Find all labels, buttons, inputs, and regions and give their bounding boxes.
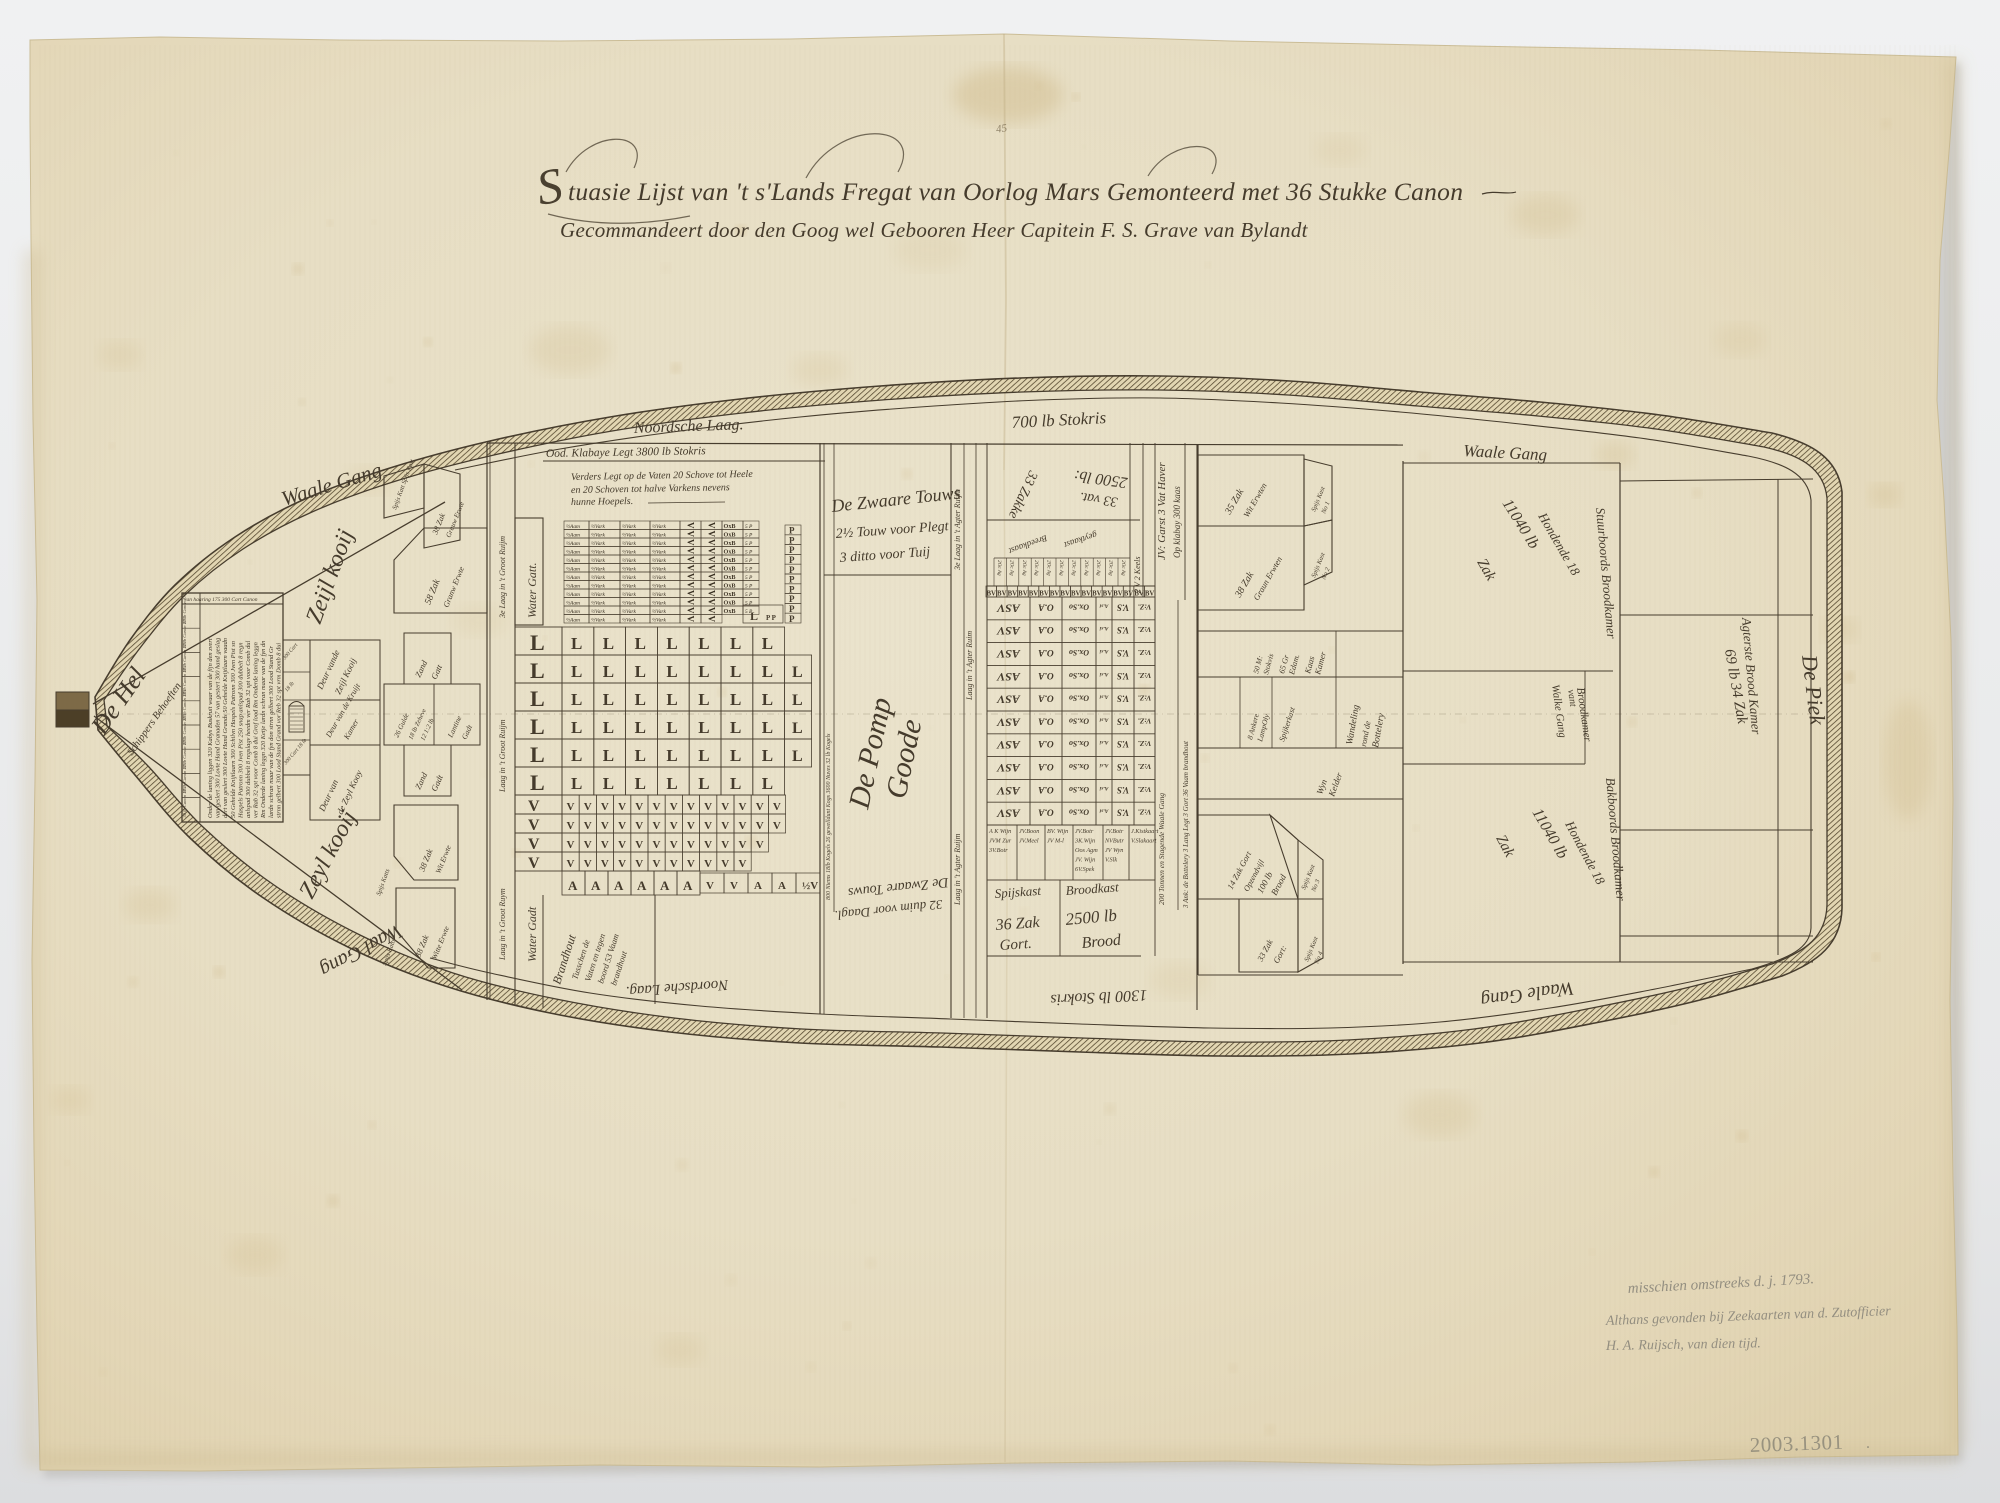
svg-text:V: V: [653, 801, 661, 813]
svg-text:2003.1301: 2003.1301: [1749, 1430, 1844, 1457]
svg-text:BV: BV: [997, 591, 1007, 598]
svg-text:5 P: 5 P: [745, 567, 753, 573]
svg-text:P: P: [789, 535, 795, 545]
svg-text:A: A: [568, 878, 578, 893]
svg-text:A.si: A.si: [1099, 694, 1109, 700]
svg-text:5 P: 5 P: [745, 558, 753, 564]
svg-text:2Oc Ag: 2Oc Ag: [1058, 560, 1064, 576]
svg-text:V: V: [686, 539, 696, 546]
svg-text:½Vark: ½Vark: [652, 600, 667, 607]
svg-text:V: V: [756, 801, 764, 813]
svg-text:V: V: [686, 573, 696, 580]
svg-text:Brood: Brood: [1081, 932, 1123, 952]
svg-text:6V.Spek: 6V.Spek: [1075, 866, 1095, 873]
svg-text:V: V: [707, 565, 717, 572]
svg-text:½Vark: ½Vark: [652, 557, 667, 564]
svg-text:Op klabay 300 kaas: Op klabay 300 kaas: [1172, 486, 1182, 558]
svg-text:Ox.So: Ox.So: [1069, 602, 1089, 611]
svg-text:Ox.So: Ox.So: [1069, 671, 1089, 680]
svg-text:V.S: V.S: [1117, 648, 1129, 658]
svg-text:L: L: [635, 690, 646, 709]
svg-text:van geslert 300 Lovte Hand Gra: van geslert 300 Lovte Hand Granaden 57 v…: [215, 637, 222, 818]
svg-text:½Vark: ½Vark: [591, 523, 606, 530]
svg-text:P: P: [789, 604, 795, 614]
svg-text:BV: BV: [987, 591, 997, 598]
svg-text:BV: BV: [1092, 591, 1102, 598]
svg-text:5 P: 5 P: [745, 524, 753, 530]
svg-text:L: L: [666, 774, 677, 793]
svg-text:BV: BV: [1113, 591, 1123, 598]
svg-text:V: V: [704, 820, 712, 832]
svg-text:2 V 2 Keels: 2 V 2 Keels: [1133, 556, 1142, 593]
svg-text:5 P: 5 P: [745, 541, 753, 547]
svg-text:3K.Wijn: 3K.Wijn: [1074, 838, 1095, 845]
svg-text:L: L: [571, 746, 582, 765]
svg-text:OxB: OxB: [724, 532, 736, 539]
svg-text:V: V: [739, 858, 747, 870]
svg-text:OxB: OxB: [724, 540, 736, 547]
svg-text:BV: BV: [1039, 591, 1049, 598]
svg-text:V: V: [730, 880, 738, 892]
svg-text:anlspad 300 dubbelt 8 regslagv: anlspad 300 dubbelt 8 regslagv heedm ver…: [245, 641, 252, 818]
svg-text:L: L: [666, 746, 677, 765]
svg-text:V.S: V.S: [1117, 694, 1129, 704]
svg-text:45: 45: [995, 122, 1008, 135]
svg-text:½Vark: ½Vark: [622, 549, 637, 556]
svg-text:L: L: [635, 634, 646, 653]
svg-text:L: L: [792, 748, 803, 765]
svg-text:L: L: [792, 664, 803, 681]
svg-text:BV: BV: [1124, 591, 1134, 598]
svg-text:Ox.So: Ox.So: [1069, 625, 1089, 634]
svg-text:V:Z.: V:Z.: [1138, 716, 1152, 725]
svg-text:V:Z.: V:Z.: [1138, 762, 1152, 771]
svg-text:A: A: [683, 878, 693, 893]
svg-text:V: V: [686, 607, 696, 614]
svg-text:V: V: [721, 839, 729, 851]
svg-text:L: L: [730, 718, 741, 737]
svg-text:V: V: [707, 590, 717, 597]
svg-text:O.A: O.A: [1038, 807, 1054, 817]
svg-text:V: V: [707, 616, 717, 623]
svg-text:V: V: [721, 801, 729, 813]
svg-text:ASV: ASV: [996, 601, 1021, 615]
svg-text:L: L: [698, 690, 709, 709]
svg-text:2Oc Ag: 2Oc Ag: [1008, 560, 1014, 576]
svg-text:V: V: [584, 820, 592, 832]
svg-text:O.A: O.A: [1038, 624, 1054, 634]
svg-text:½Vark: ½Vark: [622, 608, 637, 615]
svg-text:½V: ½V: [802, 880, 818, 892]
svg-text:L: L: [762, 690, 773, 709]
svg-text:½Aam: ½Aam: [566, 617, 580, 624]
svg-text:V: V: [670, 839, 678, 851]
svg-text:Laag in 't Agter Ruim: Laag in 't Agter Ruim: [965, 631, 974, 701]
svg-text:BV. Wijn: BV. Wijn: [1047, 828, 1068, 835]
svg-text:ver Rab 32 spt voor Comb 8 dui: ver Rab 32 spt voor Comb 8 dui Grof lood…: [253, 642, 260, 818]
svg-text:V: V: [601, 839, 609, 851]
svg-text:200 Tonnen en Stagende Waale G: 200 Tonnen en Stagende Waale Gang: [1157, 793, 1166, 905]
svg-text:V: V: [739, 839, 747, 851]
svg-text:JV.Botr: JV.Botr: [1075, 828, 1094, 835]
svg-text:V: V: [686, 565, 696, 572]
svg-text:strnn gelbert 300 Lood Stand G: strnn gelbert 300 Lood Stand Grand vor R…: [275, 643, 282, 818]
svg-text:V: V: [653, 858, 661, 870]
svg-text:50 Gehelde Knijtlaarn 300 Schi: 50 Gehelde Knijtlaarn 300 Schilvn Haspel…: [230, 641, 237, 818]
svg-text:Laag in 't Groot Ruym: Laag in 't Groot Ruym: [498, 888, 507, 961]
svg-text:V: V: [528, 817, 540, 834]
svg-text:2Oc Ag: 2Oc Ag: [1083, 560, 1089, 576]
svg-text:Ox.So: Ox.So: [1069, 785, 1089, 794]
svg-text:½Vark: ½Vark: [622, 557, 637, 564]
svg-text:V.Slk: V.Slk: [1105, 857, 1117, 864]
svg-text:2Oc Ag: 2Oc Ag: [996, 560, 1002, 576]
svg-text:L: L: [730, 746, 741, 765]
svg-text:O.A: O.A: [1038, 761, 1054, 771]
svg-text:L: L: [603, 718, 614, 737]
svg-text:L: L: [762, 746, 773, 765]
svg-text:L: L: [698, 634, 709, 653]
svg-text:A.si: A.si: [1099, 762, 1109, 768]
svg-text:V: V: [653, 839, 661, 851]
svg-text:Laag in 't Agter Ruijm: Laag in 't Agter Ruijm: [953, 833, 962, 906]
svg-text:L: L: [635, 662, 646, 681]
svg-text:A: A: [614, 878, 624, 893]
svg-text:V: V: [528, 836, 540, 853]
svg-text:A: A: [778, 880, 786, 892]
svg-text:½Vark: ½Vark: [591, 549, 606, 556]
svg-text:½Aam: ½Aam: [566, 574, 580, 581]
svg-text:L: L: [730, 690, 741, 709]
svg-text:V:Z.: V:Z.: [1138, 671, 1152, 680]
svg-text:L: L: [635, 746, 646, 765]
svg-text:V: V: [686, 590, 696, 597]
svg-text:½Aam: ½Aam: [566, 532, 580, 539]
svg-text:O.A: O.A: [1038, 647, 1054, 657]
svg-text:V.S: V.S: [1117, 762, 1129, 772]
svg-text:van haaring 175 300 Cart Can: van haaring 175 300 Cart Canon: [184, 597, 258, 603]
svg-text:V: V: [686, 531, 696, 538]
svg-text:ASV: ASV: [996, 715, 1021, 729]
svg-text:½Vark: ½Vark: [622, 523, 637, 530]
svg-text:JVM Zur: JVM Zur: [989, 838, 1012, 845]
svg-text:JV.Botr: JV.Botr: [1105, 828, 1124, 835]
svg-text:V: V: [707, 582, 717, 589]
svg-text:L: L: [603, 634, 614, 653]
svg-text:BV: BV: [1071, 591, 1081, 598]
svg-text:Haspels Patronn 300 Jven Pist: Haspels Patronn 300 Jven Pist 250 snap a…: [237, 643, 244, 819]
svg-text:ASV: ASV: [996, 647, 1021, 661]
svg-text:2Oc Ag: 2Oc Ag: [1070, 560, 1076, 576]
svg-text:5 P: 5 P: [745, 584, 753, 590]
svg-text:2Oc Ag: 2Oc Ag: [1033, 560, 1039, 576]
svg-text:L: L: [750, 609, 758, 623]
svg-text:ASV: ASV: [996, 624, 1021, 638]
svg-text:V: V: [704, 858, 712, 870]
svg-text:L: L: [530, 742, 545, 767]
svg-text:L: L: [603, 746, 614, 765]
svg-text:V: V: [635, 858, 643, 870]
svg-text:V: V: [687, 858, 695, 870]
svg-text:V:Z.: V:Z.: [1138, 808, 1152, 817]
svg-text:A.si: A.si: [1099, 716, 1109, 722]
svg-text:½Vark: ½Vark: [652, 583, 667, 590]
svg-text:L: L: [730, 634, 741, 653]
svg-text:½Vark: ½Vark: [622, 600, 637, 607]
svg-text:P: P: [789, 565, 795, 575]
svg-text:30 lb Canon 175: 30 lb Canon 175: [182, 786, 187, 817]
svg-text:A.si: A.si: [1099, 671, 1109, 677]
svg-text:L: L: [698, 718, 709, 737]
svg-text:OxB: OxB: [724, 591, 736, 598]
svg-text:½Vark: ½Vark: [652, 532, 667, 539]
svg-text:V: V: [686, 556, 696, 563]
svg-text:Ox.So: Ox.So: [1069, 739, 1089, 748]
svg-text:Laag in 't Groot Ruijm: Laag in 't Groot Ruijm: [498, 719, 507, 793]
svg-text:L: L: [730, 662, 741, 681]
svg-text:V: V: [618, 820, 626, 832]
svg-text:JV.Meel: JV.Meel: [1019, 838, 1039, 845]
svg-text:L: L: [530, 658, 545, 683]
svg-text:V:Z.: V:Z.: [1138, 648, 1152, 657]
svg-text:dert van geslert 300 Lovte Han: dert van geslert 300 Lovte Hand Grands 5…: [222, 638, 229, 818]
svg-text:V: V: [686, 599, 696, 606]
svg-text:V: V: [773, 801, 781, 813]
svg-text:Ox.So: Ox.So: [1069, 808, 1089, 817]
svg-text:V.S: V.S: [1117, 808, 1129, 818]
svg-text:V: V: [706, 880, 714, 892]
svg-text:L: L: [698, 662, 709, 681]
svg-text:tuasie Lijst van 't s'Lands Fr: tuasie Lijst van 't s'Lands Fregat van O…: [568, 177, 1463, 206]
svg-text:NVButr: NVButr: [1104, 838, 1124, 845]
svg-text:BV: BV: [1134, 591, 1144, 598]
svg-text:5 P: 5 P: [745, 575, 753, 581]
svg-text:P: P: [789, 526, 795, 536]
svg-text:V: V: [635, 820, 643, 832]
svg-text:5 P: 5 P: [745, 533, 753, 539]
svg-text:V: V: [707, 522, 717, 529]
svg-text:V: V: [584, 839, 592, 851]
svg-text:V: V: [528, 855, 540, 872]
svg-text:BV: BV: [1008, 591, 1018, 598]
svg-text:BV: BV: [1050, 591, 1060, 598]
svg-text:.: .: [1866, 1435, 1870, 1452]
svg-text:V: V: [707, 573, 717, 580]
svg-text:Rm Onderde laning leggn 320 Ke: Rm Onderde laning leggn 320 Ketje lardn …: [260, 641, 267, 819]
svg-text:V.S: V.S: [1117, 625, 1129, 635]
svg-text:V: V: [528, 798, 540, 815]
svg-text:A.si: A.si: [1099, 785, 1109, 791]
svg-text:O.A: O.A: [1038, 715, 1054, 725]
svg-text:O.A: O.A: [1038, 693, 1054, 703]
svg-text:V: V: [721, 858, 729, 870]
svg-text:V: V: [670, 801, 678, 813]
svg-text:Gecommandeert door den Goog we: Gecommandeert door den Goog wel Gebooren…: [560, 218, 1309, 242]
svg-text:OxB: OxB: [724, 523, 736, 530]
svg-text:V.S: V.S: [1117, 671, 1129, 681]
svg-text:V: V: [670, 820, 678, 832]
svg-text:L: L: [603, 662, 614, 681]
svg-text:L: L: [530, 714, 545, 739]
svg-text:L: L: [530, 630, 545, 655]
svg-text:ASV: ASV: [996, 670, 1021, 684]
svg-text:V: V: [704, 801, 712, 813]
svg-text:L: L: [635, 774, 646, 793]
svg-text:V: V: [601, 820, 609, 832]
svg-text:V: V: [635, 801, 643, 813]
svg-text:½Aam: ½Aam: [566, 600, 580, 607]
svg-text:½Aam: ½Aam: [566, 608, 580, 615]
svg-text:V.S: V.S: [1117, 785, 1129, 795]
svg-text:2Oc Ag: 2Oc Ag: [1021, 560, 1027, 576]
svg-text:A.si: A.si: [1099, 648, 1109, 654]
svg-text:½Vark: ½Vark: [591, 540, 606, 547]
svg-text:V:Z.: V:Z.: [1138, 694, 1152, 703]
svg-text:ASV: ASV: [996, 784, 1021, 798]
svg-text:V: V: [567, 820, 575, 832]
svg-text:L: L: [666, 690, 677, 709]
svg-text:BV: BV: [1029, 591, 1039, 598]
svg-text:½Vark: ½Vark: [591, 617, 606, 624]
svg-text:V: V: [567, 858, 575, 870]
svg-text:Onder de laning liggen 320 Kab: Onder de laning liggen 320 Kabys Buskrui…: [207, 638, 214, 818]
svg-text:V: V: [686, 582, 696, 589]
svg-text:P: P: [789, 575, 795, 585]
svg-text:JV Wyn: JV Wyn: [1105, 847, 1123, 854]
svg-text:Oos Agm: Oos Agm: [1075, 847, 1098, 854]
svg-text:V: V: [567, 801, 575, 813]
svg-text:A.si: A.si: [1099, 808, 1109, 814]
svg-text:2Oc Ag: 2Oc Ag: [1095, 560, 1101, 576]
svg-text:V: V: [670, 858, 678, 870]
svg-text:V: V: [618, 801, 626, 813]
svg-text:P P: P P: [766, 614, 777, 622]
svg-text:½Aam: ½Aam: [566, 540, 580, 547]
svg-text:½Vark: ½Vark: [591, 557, 606, 564]
svg-text:½Aam: ½Aam: [566, 549, 580, 556]
svg-text:A: A: [591, 878, 601, 893]
svg-text:L: L: [666, 718, 677, 737]
svg-text:V: V: [686, 548, 696, 555]
svg-text:L: L: [635, 718, 646, 737]
svg-text:ASV: ASV: [996, 738, 1021, 752]
svg-text:L: L: [530, 686, 545, 711]
svg-text:L: L: [762, 662, 773, 681]
svg-text:H. A. Ruijsch, van dien tijd.: H. A. Ruijsch, van dien tijd.: [1605, 1336, 1761, 1354]
svg-text:V: V: [707, 539, 717, 546]
svg-text:O.A: O.A: [1038, 601, 1054, 611]
svg-text:V: V: [756, 820, 764, 832]
svg-text:V: V: [584, 801, 592, 813]
svg-text:V: V: [707, 556, 717, 563]
svg-text:36 Zak: 36 Zak: [994, 914, 1041, 934]
svg-text:Water Gatt.: Water Gatt.: [525, 562, 539, 618]
svg-text:V: V: [635, 839, 643, 851]
svg-text:P: P: [789, 545, 795, 555]
svg-text:V: V: [707, 607, 717, 614]
svg-text:BV: BV: [1145, 591, 1155, 598]
svg-text:P: P: [789, 614, 795, 624]
svg-text:V: V: [687, 801, 695, 813]
svg-text:hunne Hoepels.: hunne Hoepels.: [571, 496, 633, 508]
svg-text:V: V: [601, 801, 609, 813]
svg-text:L: L: [603, 690, 614, 709]
svg-text:5 P: 5 P: [745, 592, 753, 598]
svg-text:V: V: [704, 839, 712, 851]
svg-text:½Vark: ½Vark: [622, 583, 637, 590]
svg-text:A K Wijn: A K Wijn: [988, 828, 1011, 835]
svg-text:½Vark: ½Vark: [591, 583, 606, 590]
svg-text:BV: BV: [1082, 591, 1092, 598]
svg-text:OxB: OxB: [724, 600, 736, 607]
svg-text:L: L: [666, 662, 677, 681]
svg-text:½Vark: ½Vark: [622, 566, 637, 573]
svg-text:½Vark: ½Vark: [652, 574, 667, 581]
svg-text:½Vark: ½Vark: [591, 591, 606, 598]
svg-text:½Vark: ½Vark: [622, 617, 637, 624]
svg-text:Water Gadt: Water Gadt: [525, 906, 539, 962]
svg-text:V: V: [687, 839, 695, 851]
svg-text:L: L: [698, 774, 709, 793]
svg-text:L: L: [571, 662, 582, 681]
svg-text:V: V: [773, 820, 781, 832]
svg-text:2Oc Ag: 2Oc Ag: [1108, 560, 1114, 576]
svg-text:V: V: [686, 616, 696, 623]
svg-text:OxB: OxB: [724, 574, 736, 581]
svg-text:A: A: [637, 878, 647, 893]
svg-text:OxB: OxB: [724, 566, 736, 573]
svg-text:½Vark: ½Vark: [622, 591, 637, 598]
svg-text:L: L: [698, 746, 709, 765]
svg-text:OxB: OxB: [724, 557, 736, 564]
svg-text:ASV: ASV: [996, 807, 1021, 821]
svg-text:½Vark: ½Vark: [622, 574, 637, 581]
svg-text:½Vark: ½Vark: [591, 608, 606, 615]
svg-text:Ox.So: Ox.So: [1069, 716, 1089, 725]
svg-text:V:Z.: V:Z.: [1138, 785, 1152, 794]
svg-text:½Vark: ½Vark: [622, 532, 637, 539]
svg-text:L: L: [666, 634, 677, 653]
svg-text:A: A: [660, 878, 670, 893]
svg-text:V: V: [653, 820, 661, 832]
svg-text:OxB: OxB: [724, 549, 736, 556]
svg-text:V: V: [584, 858, 592, 870]
svg-text:V: V: [739, 820, 747, 832]
svg-text:A.si: A.si: [1099, 739, 1109, 745]
svg-text:½Vark: ½Vark: [591, 600, 606, 607]
svg-text:O.A: O.A: [1038, 670, 1054, 680]
svg-text:½Vark: ½Vark: [652, 523, 667, 530]
svg-text:3e Laag in 't Agter Ruijm: 3e Laag in 't Agter Ruijm: [953, 489, 962, 571]
svg-text:5 P: 5 P: [745, 601, 753, 607]
svg-text:JV.Boon: JV.Boon: [1019, 828, 1039, 835]
svg-text:V: V: [687, 820, 695, 832]
svg-text:2Oc Ag: 2Oc Ag: [1120, 560, 1126, 576]
svg-text:P: P: [789, 555, 795, 565]
svg-text:O.A: O.A: [1038, 738, 1054, 748]
svg-text:V.S: V.S: [1117, 739, 1129, 749]
svg-text:L: L: [792, 692, 803, 709]
svg-text:ASV: ASV: [996, 761, 1021, 775]
svg-text:Gort.: Gort.: [999, 936, 1032, 954]
svg-text:V.Slakaart: V.Slakaart: [1131, 838, 1157, 845]
svg-text:½Vark: ½Vark: [652, 591, 667, 598]
svg-text:O.A: O.A: [1038, 784, 1054, 794]
svg-text:V: V: [686, 522, 696, 529]
svg-text:L: L: [762, 634, 773, 653]
svg-text:L: L: [792, 720, 803, 737]
svg-text:JV. Wijn: JV. Wijn: [1075, 857, 1095, 864]
